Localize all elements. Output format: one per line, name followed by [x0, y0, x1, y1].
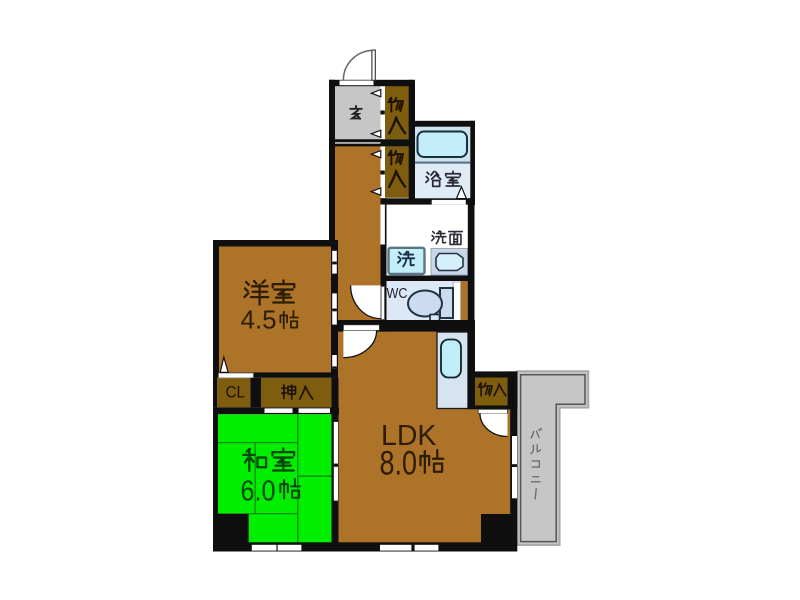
svg-text:6.0: 6.0 — [241, 475, 276, 507]
svg-text:CL: CL — [226, 383, 246, 402]
svg-text:8.0: 8.0 — [380, 445, 418, 483]
svg-text:4.5: 4.5 — [241, 304, 277, 334]
svg-text:WC: WC — [387, 285, 408, 302]
